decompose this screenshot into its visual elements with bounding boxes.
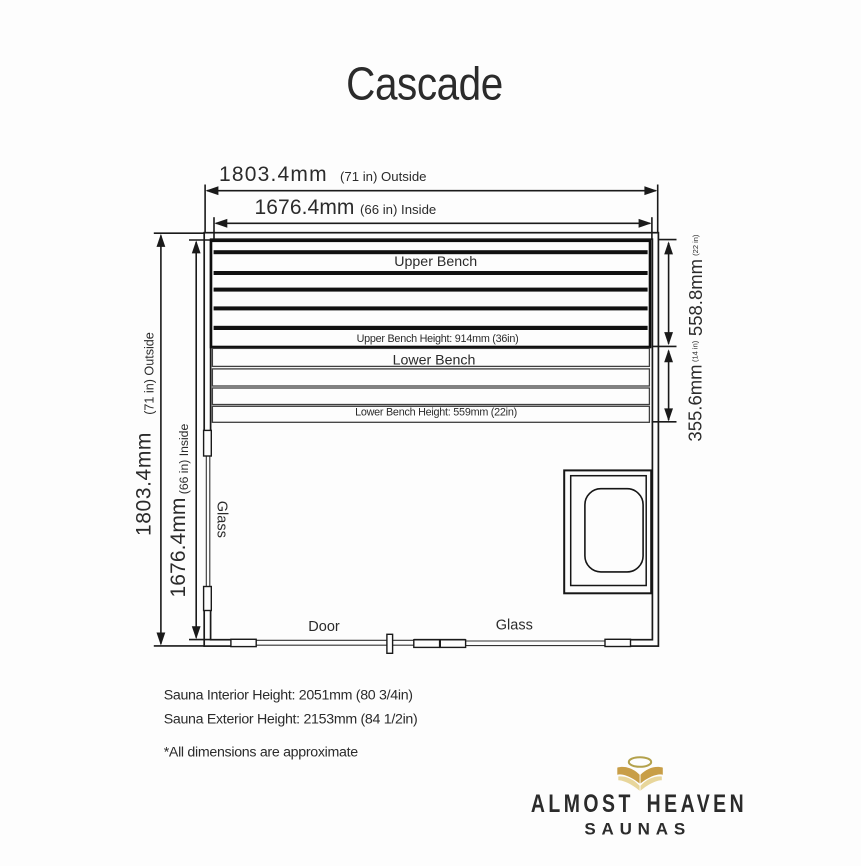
svg-text:(66 in) Inside: (66 in) Inside <box>360 202 436 217</box>
svg-text:Upper Bench: Upper Bench <box>394 254 477 270</box>
svg-text:1803.4mm: 1803.4mm <box>219 163 328 186</box>
svg-text:(14 in): (14 in) <box>691 340 700 362</box>
svg-text:Lower Bench Height: 559mm (22i: Lower Bench Height: 559mm (22in) <box>355 407 517 419</box>
svg-text:Glass: Glass <box>213 501 229 538</box>
svg-text:Sauna Exterior Height: 2153mm: Sauna Exterior Height: 2153mm (84 1/2in) <box>164 712 418 728</box>
svg-text:1803.4mm: 1803.4mm <box>133 432 156 536</box>
svg-text:1676.4mm: 1676.4mm <box>255 196 355 219</box>
svg-text:Upper Bench Height: 914mm (36i: Upper Bench Height: 914mm (36in) <box>357 333 519 345</box>
svg-text:(22 in): (22 in) <box>691 234 700 256</box>
svg-text:(71 in) Outside: (71 in) Outside <box>143 332 157 415</box>
svg-text:Sauna Interior Height: 2051mm: Sauna Interior Height: 2051mm (80 3/4in) <box>164 688 413 704</box>
svg-text:(71 in) Outside: (71 in) Outside <box>340 169 427 184</box>
svg-text:(66 in) Inside: (66 in) Inside <box>177 424 191 495</box>
svg-text:1676.4mm: 1676.4mm <box>167 497 190 597</box>
svg-text:558.8mm: 558.8mm <box>685 259 706 336</box>
svg-text:Lower Bench: Lower Bench <box>393 353 476 369</box>
svg-text:Cascade: Cascade <box>346 59 503 110</box>
svg-text:Door: Door <box>308 619 340 635</box>
svg-text:SAUNAS: SAUNAS <box>584 820 691 839</box>
svg-text:Glass: Glass <box>496 618 533 634</box>
svg-text:ALMOST HEAVEN: ALMOST HEAVEN <box>531 790 747 818</box>
svg-text:*All dimensions are approximat: *All dimensions are approximate <box>164 745 359 761</box>
svg-text:355.6mm: 355.6mm <box>685 364 706 441</box>
